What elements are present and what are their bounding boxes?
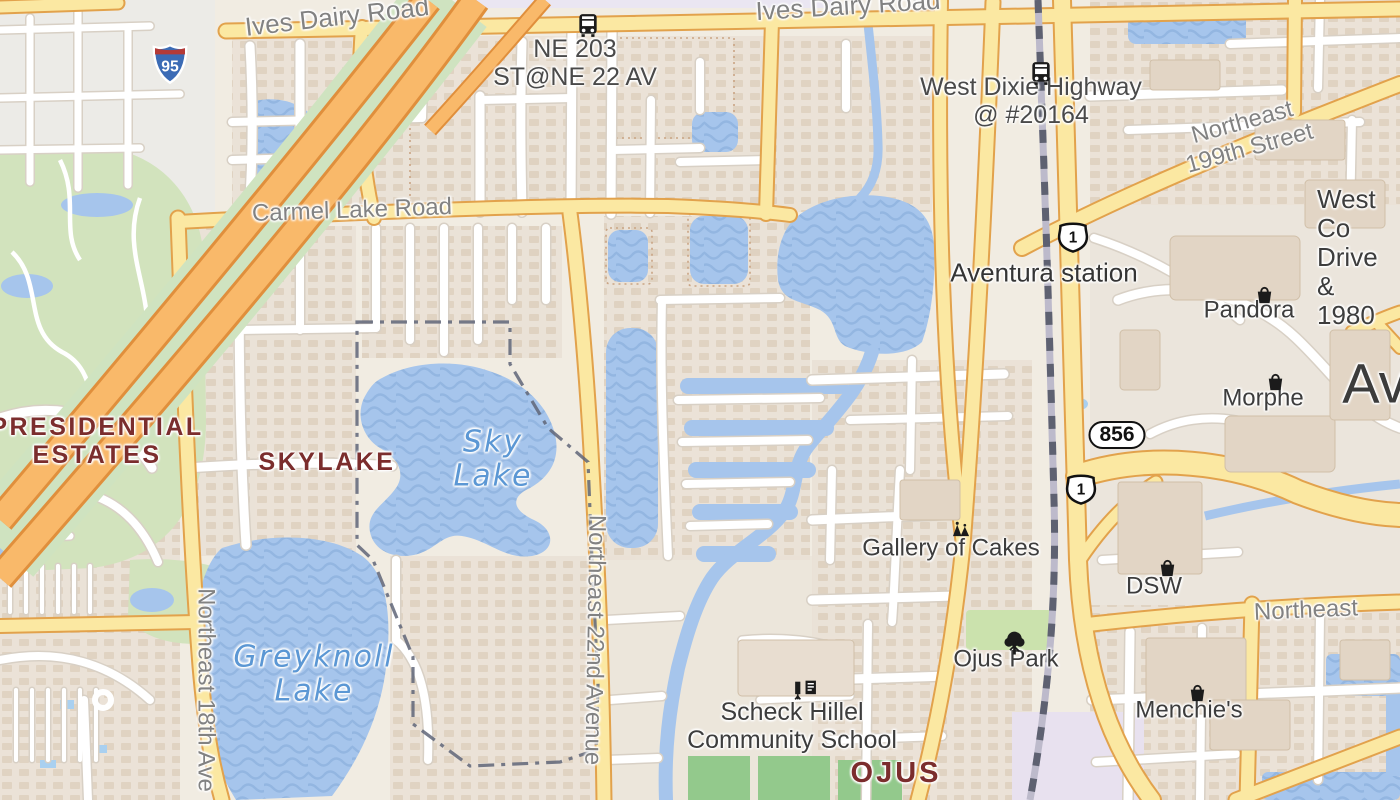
svg-text:1: 1 — [1077, 482, 1086, 499]
poi-label-scheck-hillel: Scheck Hillel Community School — [687, 698, 897, 754]
road-label-ne-18th-ave: Northeast 18th Ave — [192, 588, 219, 792]
map-labels-layer: Ives Dairy RoadIves Dairy RoadNE 203 ST@… — [0, 0, 1400, 800]
neighborhood-label-skylake: SKYLAKE — [259, 448, 396, 476]
city-label-aventura: Ave — [1342, 353, 1400, 416]
poi-label-pandora: Pandora — [1204, 298, 1295, 325]
busstop-label-ne203: NE 203 ST@NE 22 AV — [493, 35, 657, 91]
neighborhood-label-presidential-estates: PRESIDENTIAL ESTATES — [0, 413, 204, 469]
road-label-ives-dairy-2: Ives Dairy Road — [755, 0, 941, 26]
poi-label-gallery-of-cakes: Gallery of Cakes — [862, 536, 1039, 563]
water-label-greyknoll-lake: Greyknoll Lake — [233, 640, 394, 707]
svg-text:95: 95 — [161, 59, 179, 76]
poi-label-morphe: Morphe — [1222, 386, 1303, 413]
shield-856: 856 — [1088, 421, 1145, 449]
neighborhood-label-ojus: OJUS — [851, 757, 942, 789]
road-label-ives-dairy-1: Ives Dairy Road — [243, 0, 430, 42]
road-label-ne-22nd-ave: Northeast 22nd Avenue — [578, 515, 609, 766]
road-label-northeast: Northeast — [1253, 595, 1358, 626]
poi-label-west-country-club: West Co Drive & 1980 — [1317, 185, 1400, 331]
road-label-carmel-lake: Carmel Lake Road — [252, 194, 453, 228]
station-label-aventura: Aventura station — [950, 258, 1137, 287]
water-label-sky-lake: Sky Lake — [454, 425, 533, 492]
road-label-ne199: Northeast 199th Street — [1165, 90, 1328, 183]
svg-text:1: 1 — [1069, 230, 1078, 247]
map-canvas[interactable]: Ives Dairy RoadIves Dairy RoadNE 203 ST@… — [0, 0, 1400, 800]
